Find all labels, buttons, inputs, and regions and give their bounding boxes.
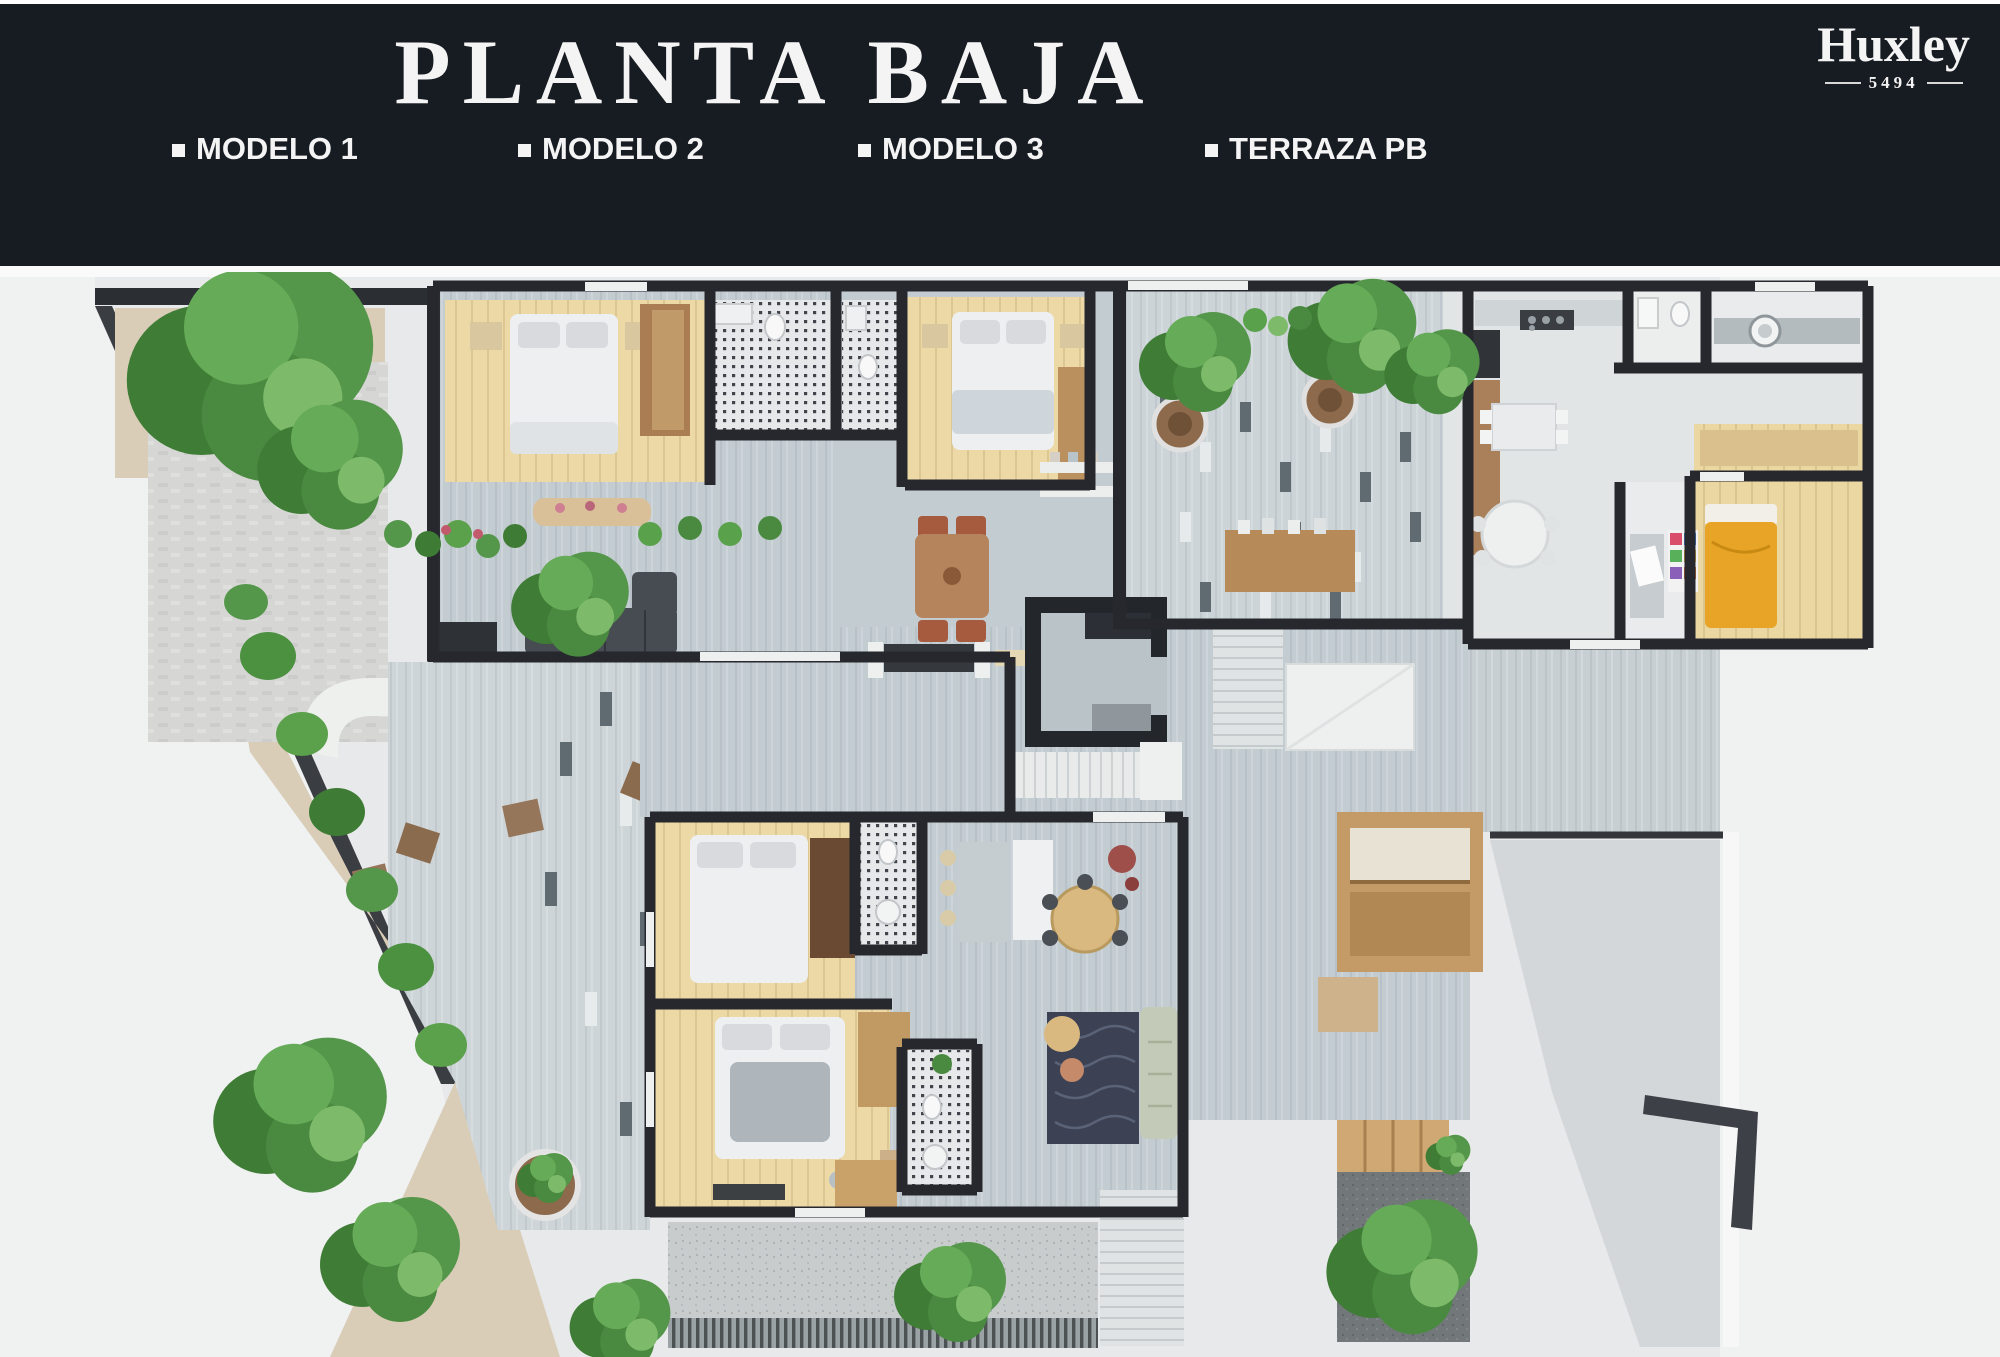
legend-item-terraza-pb: TERRAZA PB [1205, 131, 1428, 167]
page-title: PLANTA BAJA [394, 26, 1155, 118]
stairs-white [1008, 752, 1140, 798]
brand-logo: Huxley 5494 [1817, 18, 1970, 93]
stairs-mid [1213, 629, 1283, 749]
coffee-table [1060, 1058, 1084, 1082]
legend-item-modelo-1: MODELO 1 [172, 131, 358, 167]
bottom-terrace [668, 1222, 1098, 1322]
nightstand [1060, 324, 1086, 348]
square-bullet-icon [1205, 144, 1218, 157]
bed [715, 1017, 845, 1159]
living-area [1044, 1007, 1178, 1144]
floor-plan-svg [0, 272, 2000, 1357]
shelving-unit [1337, 812, 1483, 972]
planter-box [433, 622, 497, 656]
toilet [923, 1095, 941, 1119]
legend-label: MODELO 2 [542, 131, 704, 167]
coffee-table [1044, 1016, 1080, 1052]
bed [690, 835, 808, 983]
nightstand [922, 324, 948, 348]
toilet [859, 355, 877, 379]
legend-item-modelo-3: MODELO 3 [858, 131, 1044, 167]
legend-label: TERRAZA PB [1229, 131, 1428, 167]
square-bullet-icon [172, 144, 185, 157]
bed [952, 312, 1054, 450]
closet [1700, 430, 1858, 466]
sink [923, 1145, 947, 1169]
floor-plan-poster: PLANTA BAJA MODELO 1 MODELO 2 MODELO 3 T… [0, 0, 2000, 1357]
rule-line [1825, 82, 1861, 84]
bed [510, 314, 618, 454]
sink [846, 306, 866, 330]
deck-slats [668, 1318, 1098, 1348]
floor-mat [713, 1184, 785, 1200]
sink [714, 304, 752, 324]
brand-number: 5494 [1869, 73, 1919, 93]
bench [1318, 977, 1378, 1032]
sink [1638, 298, 1658, 328]
wardrobe [810, 838, 855, 958]
brand-name: Huxley [1817, 18, 1970, 71]
nightstand [470, 322, 502, 350]
toilet [765, 314, 785, 340]
square-bullet-icon [518, 144, 531, 157]
orange-bed [1705, 504, 1777, 628]
laundry-counter [1714, 318, 1860, 344]
decor-pot [1108, 845, 1136, 873]
square-bullet-icon [858, 144, 871, 157]
hall-mat [835, 1160, 897, 1208]
brand-number-row: 5494 [1817, 73, 1970, 93]
small-dining-table [1480, 404, 1568, 450]
legend-label: MODELO 1 [196, 131, 358, 167]
legend-item-modelo-2: MODELO 2 [518, 131, 704, 167]
toilet [879, 840, 897, 864]
outdoor-console [1225, 530, 1355, 592]
toilet [1671, 302, 1689, 326]
header: PLANTA BAJA MODELO 1 MODELO 2 MODELO 3 T… [0, 0, 2000, 266]
floor-plan-render [0, 272, 2000, 1357]
bathroom-plant [932, 1054, 952, 1074]
rule-line [1927, 82, 1963, 84]
sink [876, 900, 900, 924]
legend-label: MODELO 3 [882, 131, 1044, 167]
kitchen-cabinets [1013, 840, 1053, 940]
